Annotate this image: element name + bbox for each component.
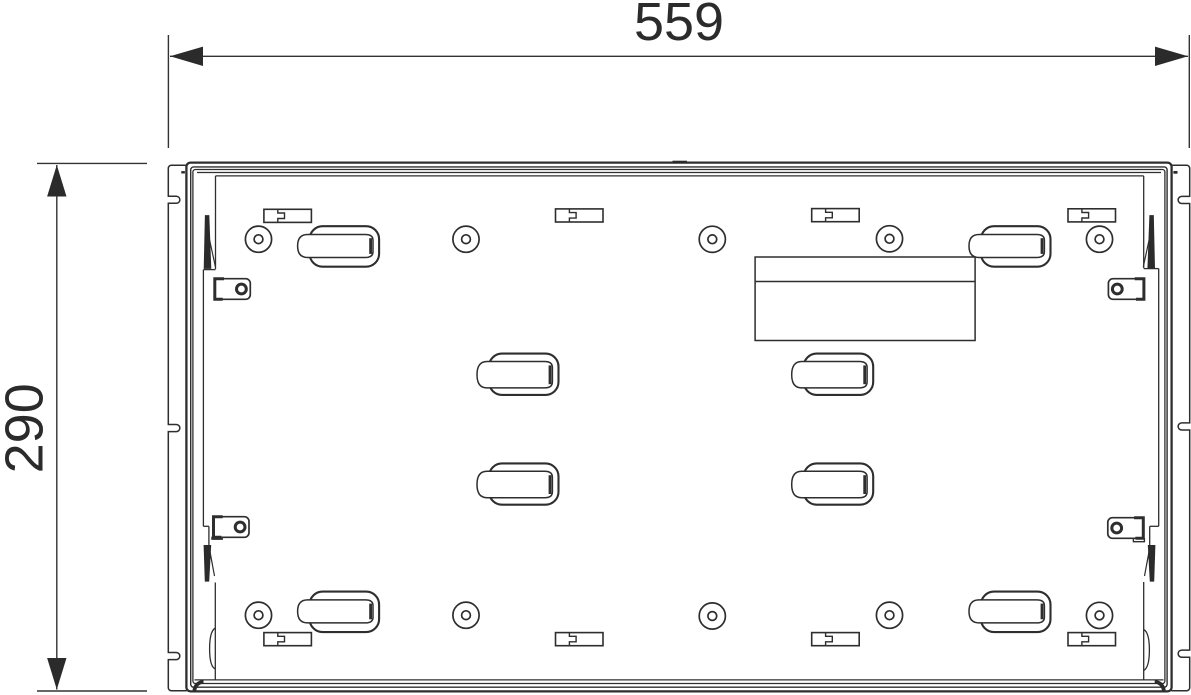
svg-text:290: 290	[0, 383, 55, 473]
svg-text:559: 559	[634, 0, 724, 52]
